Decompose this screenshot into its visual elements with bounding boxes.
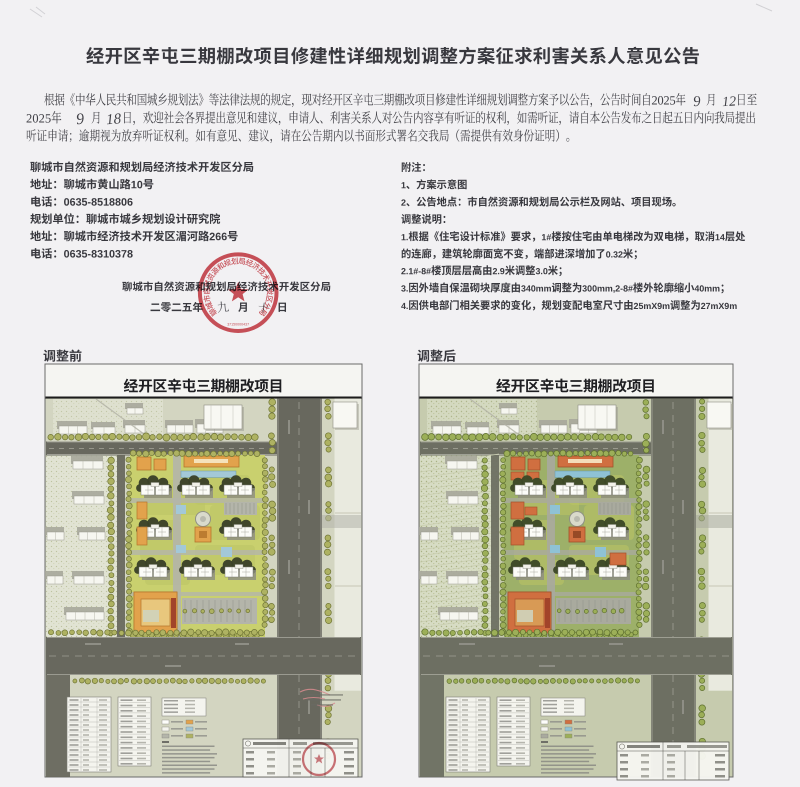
svg-text:37150000437: 37150000437 xyxy=(227,323,249,327)
